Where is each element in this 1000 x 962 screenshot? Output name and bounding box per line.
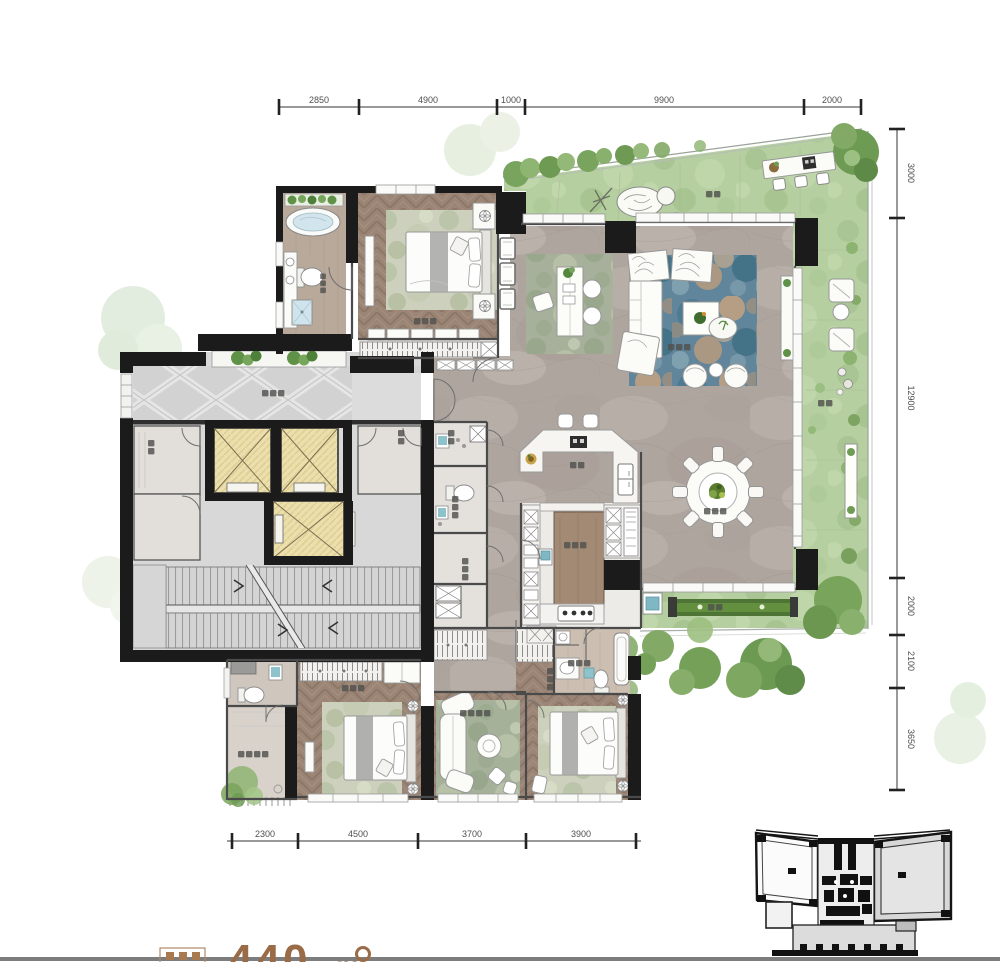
svg-text:2100: 2100 — [906, 651, 916, 671]
svg-text:4500: 4500 — [348, 829, 368, 839]
svg-text:9900: 9900 — [654, 95, 674, 105]
svg-text:2300: 2300 — [255, 829, 275, 839]
svg-text:1000: 1000 — [501, 95, 521, 105]
svg-text:3650: 3650 — [906, 729, 916, 749]
svg-text:3900: 3900 — [571, 829, 591, 839]
svg-text:440: 440 — [228, 936, 310, 962]
svg-text:4900: 4900 — [418, 95, 438, 105]
svg-text:2000: 2000 — [906, 596, 916, 616]
svg-text:3000: 3000 — [906, 163, 916, 183]
svg-text:2000: 2000 — [822, 95, 842, 105]
svg-text:3700: 3700 — [462, 829, 482, 839]
svg-text:2850: 2850 — [309, 95, 329, 105]
svg-text:12900: 12900 — [906, 385, 916, 410]
